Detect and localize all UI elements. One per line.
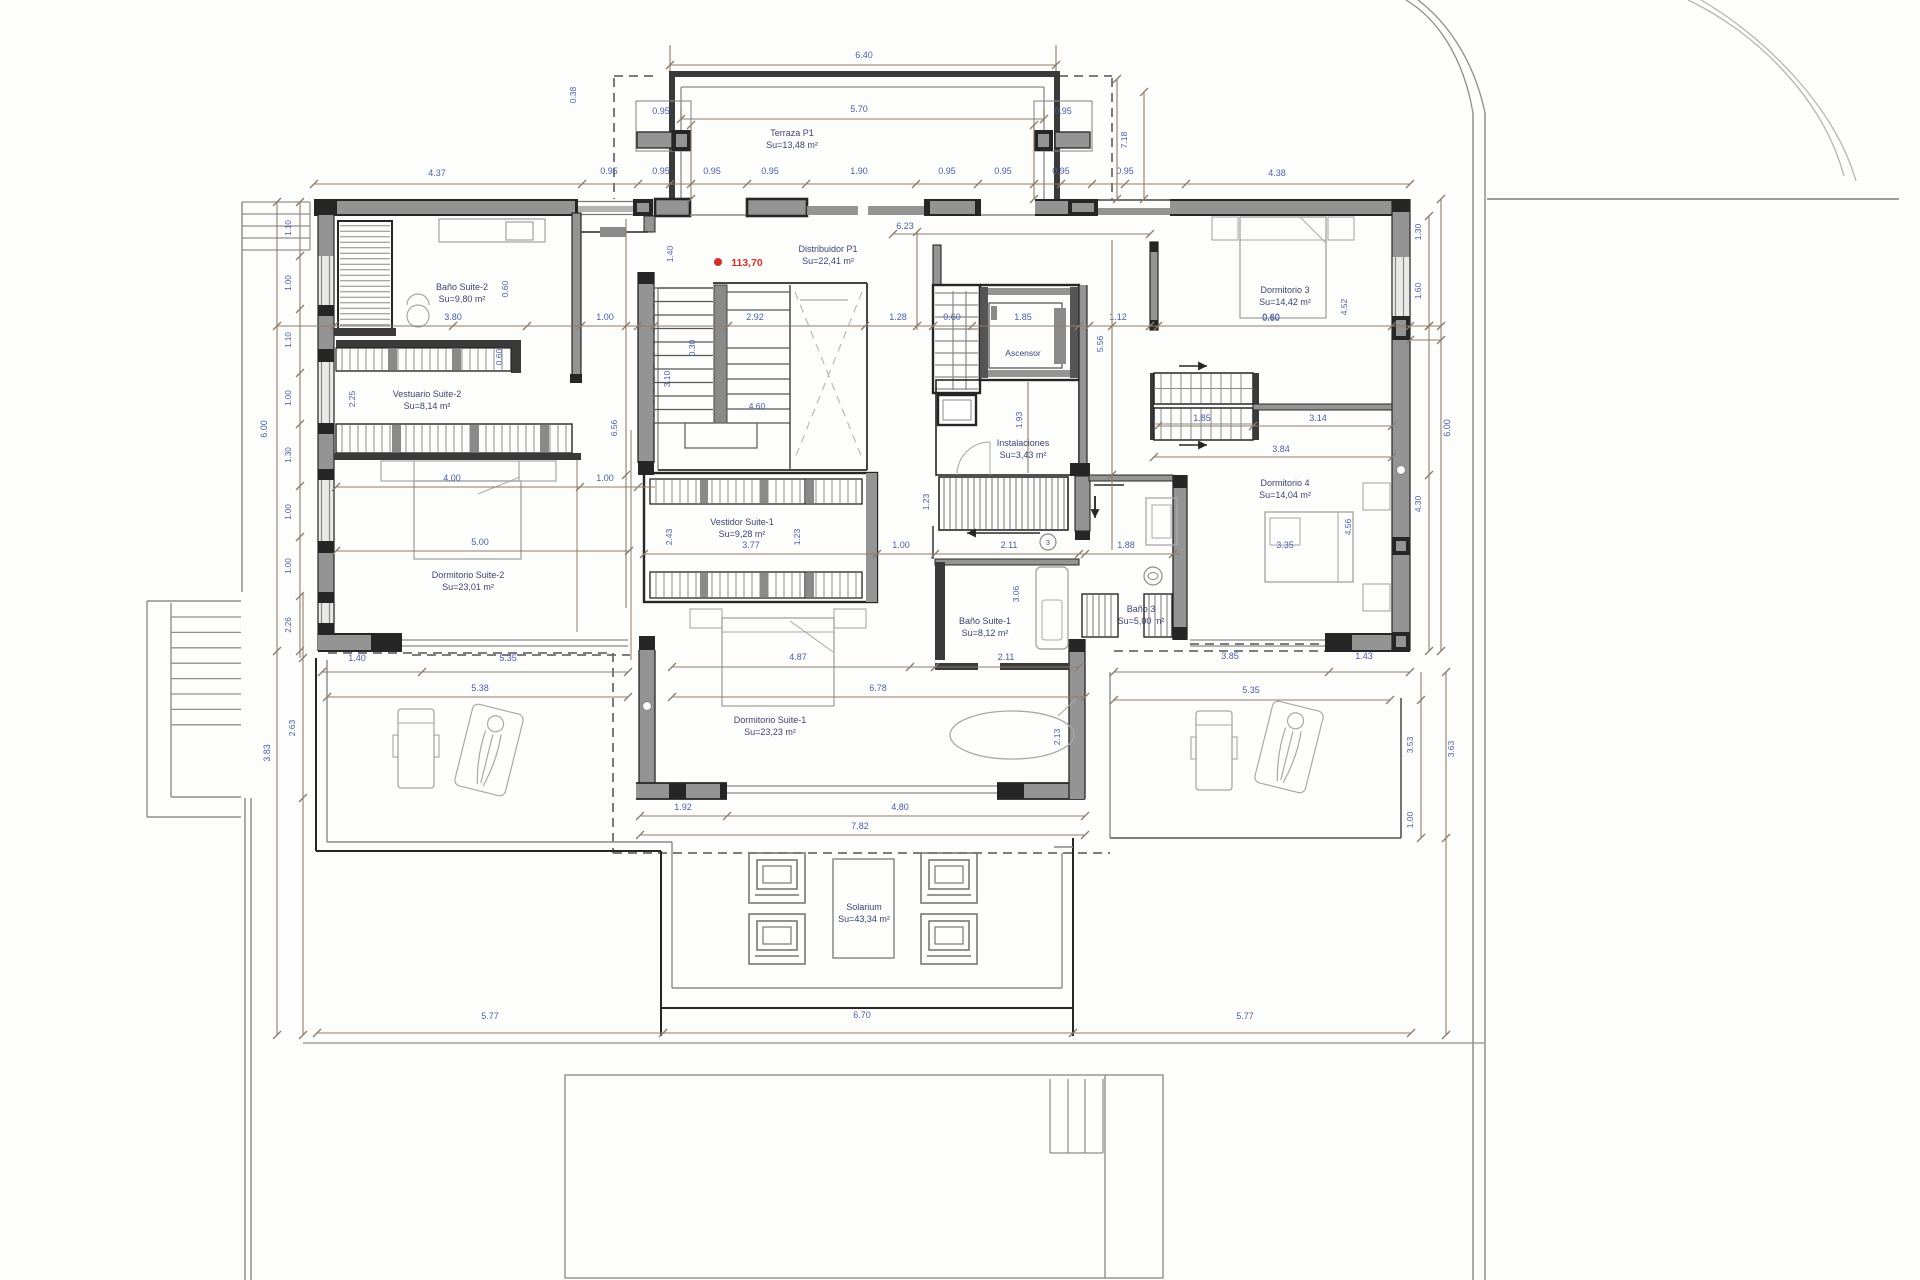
svg-text:6.70: 6.70	[853, 1010, 871, 1020]
svg-text:6.78: 6.78	[869, 683, 887, 693]
svg-text:0.95: 0.95	[1054, 106, 1072, 116]
svg-text:6.56: 6.56	[609, 419, 619, 436]
svg-text:1.00: 1.00	[284, 504, 293, 520]
svg-text:Su=8,14 m²: Su=8,14 m²	[404, 401, 451, 411]
svg-text:1.00: 1.00	[284, 275, 293, 291]
svg-text:3.80: 3.80	[444, 312, 462, 322]
svg-text:0.95: 0.95	[652, 106, 670, 116]
svg-text:0.95: 0.95	[703, 166, 721, 176]
svg-text:5.70: 5.70	[850, 104, 868, 114]
svg-text:3.63: 3.63	[1446, 740, 1456, 757]
svg-text:3.35: 3.35	[1276, 540, 1294, 550]
svg-text:1.85: 1.85	[1193, 413, 1211, 423]
svg-text:1.10: 1.10	[284, 220, 293, 236]
svg-text:1.40: 1.40	[348, 653, 366, 663]
svg-text:4.38: 4.38	[1268, 168, 1286, 178]
svg-text:0.95: 0.95	[600, 166, 618, 176]
svg-text:Solarium: Solarium	[846, 902, 882, 912]
svg-text:4.37: 4.37	[428, 168, 446, 178]
svg-text:Su=13,48 m²: Su=13,48 m²	[766, 140, 818, 150]
svg-text:2.25: 2.25	[347, 390, 357, 407]
svg-text:1.28: 1.28	[889, 312, 907, 322]
svg-text:1.23: 1.23	[921, 493, 931, 510]
svg-text:Su=5,00 m²: Su=5,00 m²	[1118, 616, 1165, 626]
svg-text:0.60: 0.60	[494, 348, 504, 365]
svg-text:1.00: 1.00	[596, 312, 614, 322]
svg-text:Su=3,43 m²: Su=3,43 m²	[1000, 450, 1047, 460]
svg-text:Vestuario Suite-2: Vestuario Suite-2	[393, 389, 462, 399]
svg-text:Dormitorio 4: Dormitorio 4	[1260, 478, 1309, 488]
svg-text:5.77: 5.77	[481, 1011, 499, 1021]
svg-text:3.85: 3.85	[1221, 651, 1239, 661]
svg-text:3: 3	[1046, 540, 1050, 547]
svg-text:5.35: 5.35	[499, 653, 517, 663]
svg-text:5.77: 5.77	[1236, 1011, 1254, 1021]
svg-text:Ascensor: Ascensor	[1005, 348, 1041, 358]
svg-text:4.30: 4.30	[1413, 495, 1423, 512]
svg-text:Dormitorio Suite-2: Dormitorio Suite-2	[432, 570, 505, 580]
svg-text:1.30: 1.30	[284, 447, 293, 463]
svg-text:Dormitorio Suite-1: Dormitorio Suite-1	[734, 715, 807, 725]
svg-text:0.95: 0.95	[1116, 166, 1134, 176]
svg-text:2.13: 2.13	[1052, 728, 1062, 745]
svg-text:6.40: 6.40	[855, 50, 873, 60]
svg-text:4.80: 4.80	[891, 802, 909, 812]
svg-text:4.00: 4.00	[443, 473, 461, 483]
svg-text:1.60: 1.60	[1413, 282, 1423, 299]
svg-text:Su=8,12 m²: Su=8,12 m²	[962, 628, 1009, 638]
svg-text:0.60: 0.60	[1262, 312, 1280, 322]
svg-text:0.30: 0.30	[687, 339, 697, 356]
svg-text:1.30: 1.30	[1413, 223, 1423, 240]
svg-text:5.35: 5.35	[1242, 685, 1260, 695]
svg-text:Terraza P1: Terraza P1	[770, 128, 814, 138]
svg-text:3.53: 3.53	[1405, 736, 1415, 753]
svg-text:1.88: 1.88	[1117, 540, 1135, 550]
svg-text:Su=9,28 m²: Su=9,28 m²	[719, 529, 766, 539]
svg-text:Su=43,34 m²: Su=43,34 m²	[838, 914, 890, 924]
svg-text:0.38: 0.38	[568, 86, 578, 103]
svg-text:0.60: 0.60	[500, 280, 510, 297]
svg-text:4.56: 4.56	[1343, 518, 1353, 535]
svg-text:1.85: 1.85	[1014, 312, 1032, 322]
svg-text:Vestidor Suite-1: Vestidor Suite-1	[710, 517, 774, 527]
svg-text:1.00: 1.00	[892, 540, 910, 550]
svg-text:6.00: 6.00	[259, 420, 269, 438]
svg-text:Su=9,80 m²: Su=9,80 m²	[439, 294, 486, 304]
svg-text:0.95: 0.95	[652, 166, 670, 176]
svg-text:6.00: 6.00	[1442, 419, 1452, 437]
svg-text:2.11: 2.11	[998, 652, 1015, 662]
svg-text:3.06: 3.06	[1011, 585, 1021, 602]
svg-text:0.95: 0.95	[761, 166, 779, 176]
svg-text:4.60: 4.60	[749, 401, 766, 411]
svg-text:1.93: 1.93	[1014, 411, 1024, 428]
svg-text:113,70: 113,70	[731, 257, 763, 269]
svg-text:2.92: 2.92	[746, 312, 764, 322]
svg-text:0.95: 0.95	[938, 166, 956, 176]
svg-text:1.00: 1.00	[1405, 811, 1415, 828]
svg-text:Dormitorio 3: Dormitorio 3	[1260, 285, 1309, 295]
svg-text:1.00: 1.00	[284, 390, 293, 406]
svg-text:Su=23,01 m²: Su=23,01 m²	[442, 582, 494, 592]
svg-text:Instalaciones: Instalaciones	[997, 438, 1050, 448]
svg-text:3.10: 3.10	[662, 370, 672, 387]
svg-text:Su=14,42 m²: Su=14,42 m²	[1259, 297, 1311, 307]
svg-text:4.87: 4.87	[789, 652, 807, 662]
svg-text:2.43: 2.43	[664, 528, 674, 545]
svg-text:5.00: 5.00	[471, 537, 489, 547]
svg-text:1.10: 1.10	[284, 332, 293, 348]
svg-text:Su=23,23 m²: Su=23,23 m²	[744, 727, 796, 737]
svg-text:1.90: 1.90	[850, 166, 868, 176]
svg-text:6.23: 6.23	[896, 221, 914, 231]
svg-text:1.00: 1.00	[284, 558, 293, 574]
svg-text:2.63: 2.63	[287, 719, 297, 736]
svg-text:2.11: 2.11	[1001, 540, 1018, 550]
svg-text:1.92: 1.92	[674, 802, 692, 812]
svg-text:5.56: 5.56	[1095, 335, 1105, 352]
svg-text:5.38: 5.38	[471, 683, 489, 693]
svg-text:1.00: 1.00	[596, 473, 614, 483]
svg-text:3.84: 3.84	[1272, 444, 1290, 454]
svg-text:0.95: 0.95	[994, 166, 1012, 176]
svg-text:1.40: 1.40	[665, 245, 675, 262]
svg-text:Distribuidor P1: Distribuidor P1	[798, 244, 857, 254]
svg-text:Su=22,41 m²: Su=22,41 m²	[802, 256, 854, 266]
svg-text:1.43: 1.43	[1355, 651, 1373, 661]
svg-text:Baño 3: Baño 3	[1127, 604, 1156, 614]
svg-text:3.14: 3.14	[1309, 413, 1327, 423]
svg-text:7.82: 7.82	[851, 821, 869, 831]
svg-text:0.60: 0.60	[943, 312, 961, 322]
svg-text:1.23: 1.23	[792, 528, 802, 545]
svg-text:2.26: 2.26	[284, 617, 293, 633]
svg-text:3.77: 3.77	[742, 540, 760, 550]
svg-text:3.83: 3.83	[262, 744, 272, 762]
svg-text:Su=14,04 m²: Su=14,04 m²	[1259, 490, 1311, 500]
svg-text:0.95: 0.95	[1052, 166, 1070, 176]
svg-text:7.18: 7.18	[1119, 131, 1129, 148]
svg-text:Baño Suite-2: Baño Suite-2	[436, 282, 488, 292]
svg-text:4.52: 4.52	[1339, 298, 1349, 315]
svg-text:Baño Suite-1: Baño Suite-1	[959, 616, 1011, 626]
